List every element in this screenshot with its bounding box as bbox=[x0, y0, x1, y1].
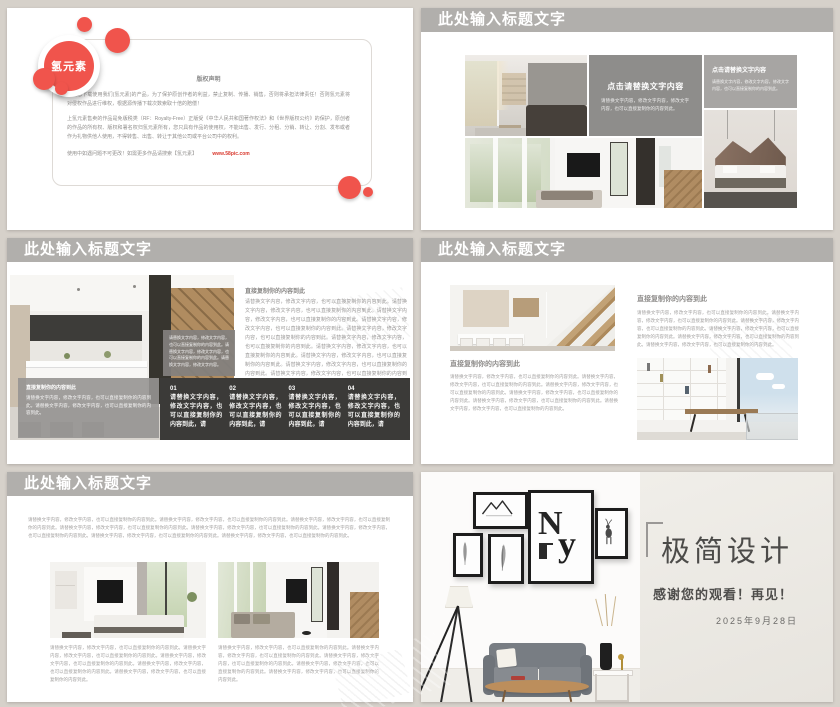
photo-overlay-panel[interactable]: 直接复制你的内容到此 请替换文字内容，修改文字内容，也可以直接复制你的内容到此。… bbox=[18, 378, 159, 438]
side-table bbox=[593, 598, 633, 702]
photo-caption-text: 请替换文字内容，修改文字内容，也可以直接复制你的内容到此。请替换文字内容，修改文… bbox=[169, 335, 229, 369]
slide-title: 此处输入标题文字 bbox=[24, 475, 152, 492]
slide-4-two-column[interactable]: 此处输入标题文字 直接复制你的内容到此 请替换文字内容，修改文字内容，也可以直接… bbox=[421, 238, 833, 464]
step-number: 02 bbox=[229, 386, 281, 392]
photo-dining-stairs bbox=[450, 285, 615, 351]
site-link[interactable]: www.58pic.com bbox=[212, 151, 249, 157]
photo-bedroom-tv bbox=[50, 562, 206, 638]
photo-living-room-2 bbox=[218, 562, 379, 638]
closing-subtitle: 感谢您的观看！再见！ bbox=[643, 584, 803, 603]
step-number: 04 bbox=[348, 386, 400, 392]
step-number: 01 bbox=[170, 386, 222, 392]
closing-date: 2025年9月28日 bbox=[646, 614, 798, 627]
text-box-body: 请替换文字内容，修改文字内容，修改文字内容，也可以直接复制你的内容到此。 bbox=[601, 97, 689, 112]
frame-letter-y: y bbox=[558, 523, 576, 565]
section-body: 请替换文字内容，修改文字内容，也可以直接复制你的内容到此。请替换文字内容，修改文… bbox=[245, 298, 407, 376]
copyright-para-2: 上氢元素售卖的作品是免版税类（RF：Royalty-Free）正版受《中华人民共… bbox=[67, 115, 350, 142]
copyright-para-1: 感谢您下载使用我们(氢元素)的产品，为了保护原创作者的利益，禁止复制、传播、销售… bbox=[67, 91, 350, 109]
slide-title-bar: 此处输入标题文字 bbox=[421, 8, 833, 32]
step-item[interactable]: 01 请替换文字内容，修改文字内容，也可以直接复制你的内容到此，请 bbox=[170, 386, 222, 432]
overlay-heading: 直接复制你的内容到此 bbox=[26, 384, 151, 391]
steps-panel: 01 请替换文字内容，修改文字内容，也可以直接复制你的内容到此，请 02 请替换… bbox=[160, 378, 410, 440]
frame-mountain-art bbox=[473, 492, 528, 529]
overlay-body: 请替换文字内容，修改文字内容，也可以直接复制你的内容到此。请替换文字内容，修改文… bbox=[26, 394, 151, 417]
photo-caption: 请替换文字内容，修改文字内容，也可以直接复制你的内容到此。请替换文字内容，修改文… bbox=[50, 644, 206, 686]
step-item[interactable]: 04 请替换文字内容，修改文字内容，也可以直接复制你的内容到此，请 bbox=[348, 386, 400, 432]
photo-caption: 请替换文字内容，修改文字内容，也可以直接复制你的内容到此。请替换文字内容，修改文… bbox=[218, 644, 379, 686]
template-preview-grid: 版权声明 感谢您下载使用我们(氢元素)的产品，为了保护原创作者的利益，禁止复制、… bbox=[0, 0, 840, 707]
decor-circle-bottom-left bbox=[33, 68, 55, 90]
text-box-body: 请替换文字内容，修改文字内容，修改文字内容，也可以直接复制你的内容到此。 bbox=[712, 79, 789, 93]
copyright-para-3: 使用中如遇问题不可更改！如需更多作品请搜索【氢元素】 bbox=[67, 151, 197, 157]
frame-feather-small bbox=[453, 533, 483, 577]
frame-deer-art bbox=[595, 508, 628, 559]
photo-caption-box[interactable]: 请替换文字内容，修改文字内容，也可以直接复制你的内容到此。请替换文字内容，修改文… bbox=[163, 330, 235, 376]
section-heading: 直接复制你的内容到此 bbox=[450, 359, 618, 369]
slide-5-two-photos[interactable]: 此处输入标题文字 请替换文字内容，修改文字内容，也可以直接复制你的内容到此。请替… bbox=[7, 472, 413, 702]
photo-study bbox=[637, 358, 798, 440]
slide-1-copyright[interactable]: 版权声明 感谢您下载使用我们(氢元素)的产品，为了保护原创作者的利益，禁止复制、… bbox=[7, 8, 413, 230]
decor-circle-bottom-small bbox=[55, 82, 68, 95]
text-box-title: 点击请替换文字内容 bbox=[599, 81, 692, 92]
decor-circle-br-small bbox=[363, 187, 373, 197]
slide-3-kitchen-steps[interactable]: 此处输入标题文字 请替换文字内容，修改文字内容，也可以直接复制你的内容到此。请替… bbox=[7, 238, 413, 464]
text-box-secondary[interactable]: 点击请替换文字内容 请替换文字内容，修改文字内容，修改文字内容，也可以直接复制你… bbox=[704, 55, 797, 108]
frame-feather-large bbox=[488, 534, 524, 584]
text-box-title: 点击请替换文字内容 bbox=[712, 65, 789, 74]
decor-circle-small-top bbox=[77, 17, 92, 32]
step-text: 请替换文字内容，修改文字内容，也可以直接复制你的内容到此，请 bbox=[170, 394, 222, 430]
decor-circle-right bbox=[105, 28, 130, 53]
slide-title: 此处输入标题文字 bbox=[24, 241, 152, 258]
step-text: 请替换文字内容，修改文字内容，也可以直接复制你的内容到此，请 bbox=[229, 394, 281, 430]
section-heading: 直接复制你的内容到此 bbox=[637, 294, 799, 304]
photo-bedroom bbox=[704, 110, 797, 208]
closing-title: 极简设计 bbox=[661, 528, 821, 570]
section-body: 请替换文字内容，修改文字内容，也可以直接复制你的内容到此。请替换文字内容，修改文… bbox=[637, 309, 799, 353]
photo-living-room bbox=[465, 55, 587, 136]
copyright-title: 版权声明 bbox=[67, 74, 350, 83]
slide-2-collage[interactable]: 此处输入标题文字 点击请替换文字内容 请替换文字内容，修改文字内容，修改文字内容… bbox=[421, 8, 833, 230]
slide-title-bar: 此处输入标题文字 bbox=[421, 238, 833, 262]
copyright-card bbox=[52, 39, 372, 186]
slide-title: 此处输入标题文字 bbox=[438, 241, 566, 258]
section-heading: 直接复制你的内容到此 bbox=[245, 286, 407, 295]
slide-title-bar: 此处输入标题文字 bbox=[7, 472, 413, 496]
intro-paragraph: 请替换文字内容，修改文字内容，也可以直接复制你的内容到此。请替换文字内容，修改文… bbox=[28, 516, 390, 544]
step-text: 请替换文字内容，修改文字内容，也可以直接复制你的内容到此，请 bbox=[289, 394, 341, 430]
text-box-primary[interactable]: 点击请替换文字内容 请替换文字内容，修改文字内容，修改文字内容，也可以直接复制你… bbox=[589, 55, 702, 136]
photo-tv-room bbox=[465, 138, 702, 208]
section-body: 请替换文字内容，修改文字内容，也可以直接复制你的内容到此。请替换文字内容，修改文… bbox=[450, 373, 618, 435]
slide-6-thank-you[interactable]: N y bbox=[421, 472, 833, 702]
copyright-footer: 使用中如遇问题不可更改！如需更多作品请搜索【氢元素】 www.58pic.com bbox=[67, 150, 350, 157]
decor-circle-br-big bbox=[338, 176, 361, 199]
step-item[interactable]: 02 请替换文字内容，修改文字内容，也可以直接复制你的内容到此，请 bbox=[229, 386, 281, 432]
step-number: 03 bbox=[289, 386, 341, 392]
frame-ny-letters: N y bbox=[528, 490, 594, 584]
coffee-table bbox=[485, 676, 589, 702]
step-text: 请替换文字内容，修改文字内容，也可以直接复制你的内容到此，请 bbox=[348, 394, 400, 430]
slide-title: 此处输入标题文字 bbox=[438, 11, 566, 28]
slide-title-bar: 此处输入标题文字 bbox=[7, 238, 413, 262]
step-item[interactable]: 03 请替换文字内容，修改文字内容，也可以直接复制你的内容到此，请 bbox=[289, 386, 341, 432]
